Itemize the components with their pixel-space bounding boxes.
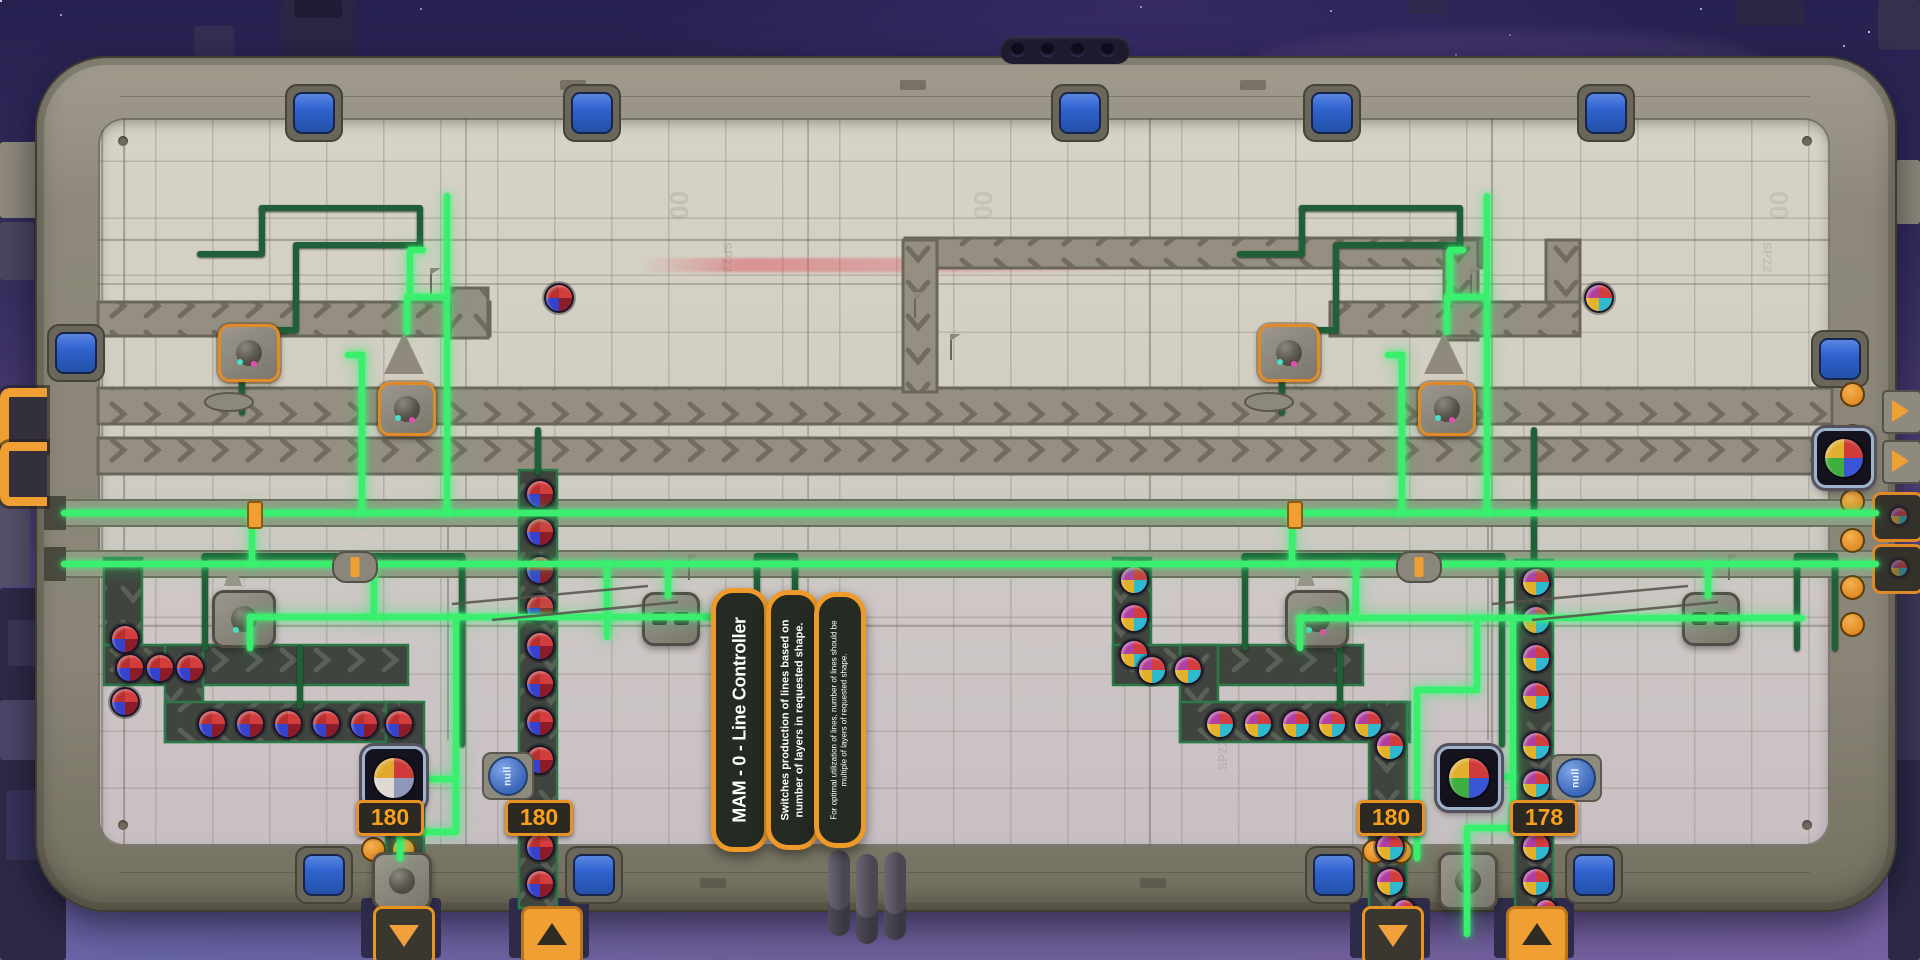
port-socket-blue — [573, 854, 615, 896]
virtual-analyzer[interactable] — [378, 382, 436, 436]
platform-port[interactable] — [295, 846, 353, 904]
game-viewport: 00 00 00 SPZ2 SPZ2 SPZ2 SPZ2 — [0, 0, 1920, 960]
belt-exit-down[interactable] — [1362, 906, 1424, 960]
sender-lens — [1455, 868, 1481, 894]
sign-title-text: MAM - 0 - Line Controller — [730, 600, 751, 840]
wire-knob — [1840, 382, 1865, 407]
signal-antenna — [430, 268, 432, 294]
dish-antenna — [1244, 392, 1294, 412]
signal-text: null — [1571, 768, 1582, 788]
port-socket-blue — [1313, 854, 1355, 896]
signal-antenna — [688, 554, 690, 580]
down-arrow-icon — [1378, 925, 1408, 947]
shape-viewer-screen — [372, 756, 416, 800]
port-socket-blue — [1819, 338, 1861, 380]
wire-knob — [1840, 528, 1865, 553]
down-arrow-icon — [389, 925, 419, 947]
wire-peg — [1287, 501, 1303, 529]
port-socket-blue — [1059, 92, 1101, 134]
signal-value-null[interactable]: null — [1550, 754, 1602, 802]
wire-peg — [247, 501, 263, 529]
shape-analyzer[interactable] — [1285, 590, 1349, 648]
port-socket-blue — [55, 332, 97, 374]
port-socket-blue — [1573, 854, 1615, 896]
throughput-counter[interactable]: 180 — [505, 800, 573, 836]
platform-port[interactable] — [565, 846, 623, 904]
wire-knob — [1840, 612, 1865, 637]
virtual-analyzer[interactable] — [1258, 324, 1320, 382]
port-socket-blue — [303, 854, 345, 896]
signal-comparator[interactable] — [642, 592, 700, 646]
wire-knob — [1362, 839, 1387, 864]
wire-knob — [1840, 575, 1865, 600]
sign-title[interactable]: MAM - 0 - Line Controller — [711, 588, 769, 852]
platform-port[interactable] — [1577, 84, 1635, 142]
platform-port[interactable] — [1811, 330, 1869, 388]
up-arrow-icon — [537, 923, 567, 945]
belt-sender[interactable] — [1438, 852, 1498, 910]
sign-description-text: Switches production of lines based on nu… — [779, 604, 807, 836]
platform-port[interactable] — [285, 84, 343, 142]
platform-port[interactable] — [1305, 846, 1363, 904]
right-arrow-icon — [1892, 450, 1909, 472]
shape-viewer-screen — [1447, 756, 1491, 800]
right-arrow-icon — [1892, 400, 1909, 422]
conveyor-belts[interactable] — [98, 238, 1832, 474]
signal-antenna — [1728, 554, 1730, 580]
throughput-counter[interactable]: 180 — [356, 800, 424, 836]
wire-knob — [1388, 839, 1413, 864]
platform-port[interactable] — [1565, 846, 1623, 904]
belt-output-port[interactable] — [1882, 440, 1920, 484]
belt-exit-up[interactable] — [1506, 906, 1568, 960]
shape-viewer-screen — [1823, 437, 1865, 479]
sign-note-text: For optimal utilization of lines, number… — [830, 620, 851, 820]
sender-lens — [389, 868, 415, 894]
virtual-analyzer[interactable] — [1418, 382, 1476, 436]
pipe-network[interactable] — [200, 208, 1835, 744]
signal-value-null[interactable]: null — [482, 752, 534, 800]
belt-sender[interactable] — [372, 852, 432, 910]
up-arrow-icon — [1522, 923, 1552, 945]
port-socket-blue — [571, 92, 613, 134]
gate-slot — [1415, 557, 1424, 577]
signal-antenna — [1470, 268, 1472, 294]
throughput-counter[interactable]: 178 — [1510, 800, 1578, 836]
belt-input-port[interactable] — [0, 442, 47, 506]
wire-output-port[interactable] — [1872, 492, 1920, 542]
port-socket-blue — [1311, 92, 1353, 134]
wire-gate[interactable] — [332, 551, 378, 583]
throughput-counter[interactable]: 180 — [1357, 800, 1425, 836]
signal-antenna — [914, 292, 916, 318]
platform-port[interactable] — [1051, 84, 1109, 142]
shape-display[interactable] — [1437, 746, 1501, 810]
sign-description[interactable]: Switches production of lines based on nu… — [766, 590, 820, 850]
wire-gate[interactable] — [1396, 551, 1442, 583]
platform-port[interactable] — [1303, 84, 1361, 142]
port-socket-blue — [1585, 92, 1627, 134]
belt-output-port[interactable] — [1882, 390, 1920, 434]
wire-knob — [1840, 489, 1865, 514]
wire-output-port[interactable] — [1872, 544, 1920, 594]
dish-antenna — [204, 392, 254, 412]
port-socket-blue — [293, 92, 335, 134]
shape-analyzer[interactable] — [212, 590, 276, 648]
platform-port[interactable] — [563, 84, 621, 142]
signal-comparator[interactable] — [1682, 592, 1740, 646]
virtual-analyzer[interactable] — [218, 324, 280, 382]
conveyor-belt-layer[interactable] — [0, 0, 1920, 960]
belt-exit-up[interactable] — [521, 906, 583, 960]
sign-note[interactable]: For optimal utilization of lines, number… — [814, 592, 866, 848]
shape-display[interactable] — [1814, 428, 1874, 488]
gate-slot — [351, 557, 360, 577]
wire-channels — [44, 496, 1876, 581]
platform-port[interactable] — [47, 324, 105, 382]
signal-antenna — [950, 334, 952, 360]
belt-exit-down[interactable] — [373, 906, 435, 960]
signal-text: null — [503, 766, 514, 786]
